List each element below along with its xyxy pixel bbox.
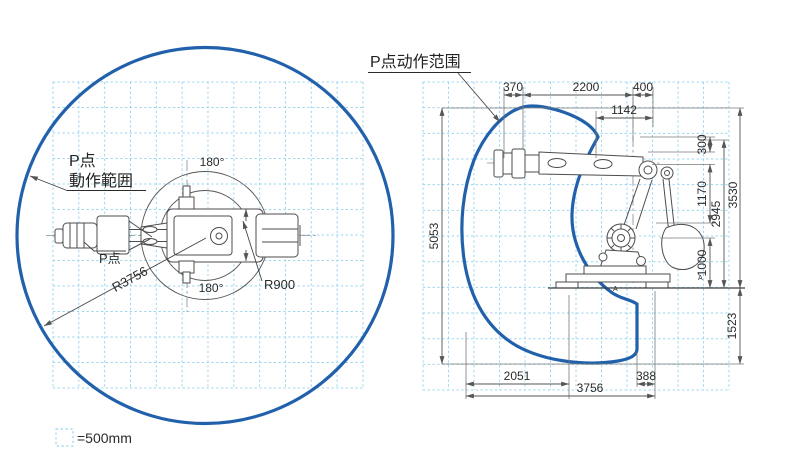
title-leader xyxy=(458,73,500,122)
dim-1142-label: 1142 xyxy=(611,103,637,117)
dim-5053-label: 5053 xyxy=(427,222,441,249)
dim-388-label: 388 xyxy=(636,369,656,383)
right-view: P点动作范围 xyxy=(368,53,745,399)
gripper xyxy=(55,216,152,254)
dim-1170-label: 1170 xyxy=(695,181,709,207)
dim-1000-label: 1000 xyxy=(695,249,709,276)
dim-3756-label: 3756 xyxy=(577,381,604,395)
angle-bottom-label: 180° xyxy=(199,281,224,295)
r900-label: R900 xyxy=(264,277,295,292)
dim-370-label: 370 xyxy=(503,80,523,94)
dim-300-label: 300 xyxy=(695,134,709,154)
scale-legend-label: =500mm xyxy=(77,430,132,446)
dim-3530-label: 3530 xyxy=(726,181,740,208)
right-view-title: P点动作范围 xyxy=(370,53,461,71)
dim-2200-label: 2200 xyxy=(573,80,600,94)
j2-joint xyxy=(607,224,635,252)
wrist xyxy=(494,149,539,178)
dim-1523-label: 1523 xyxy=(725,312,739,339)
dim-400-label: 400 xyxy=(633,80,653,94)
p-point-label: P点 xyxy=(99,251,121,266)
dim-2051-label: 2051 xyxy=(504,369,531,383)
robot-working-range-diagram: P点 動作範囲 180° 180° R3756 R900 P点 P点动作范围 xyxy=(0,0,785,473)
annotation-leader xyxy=(30,176,67,191)
left-annotation-line1: P点 xyxy=(69,152,96,170)
dim-2945-label: 2945 xyxy=(709,200,723,227)
section-mark-a-left: A xyxy=(613,286,618,293)
left-annotation-line2: 動作範囲 xyxy=(69,172,133,190)
grid-square-sample xyxy=(56,429,73,446)
r3756-label: R3756 xyxy=(109,263,150,295)
angle-top-label: 180° xyxy=(200,155,225,169)
scale-legend: =500mm xyxy=(56,429,132,446)
